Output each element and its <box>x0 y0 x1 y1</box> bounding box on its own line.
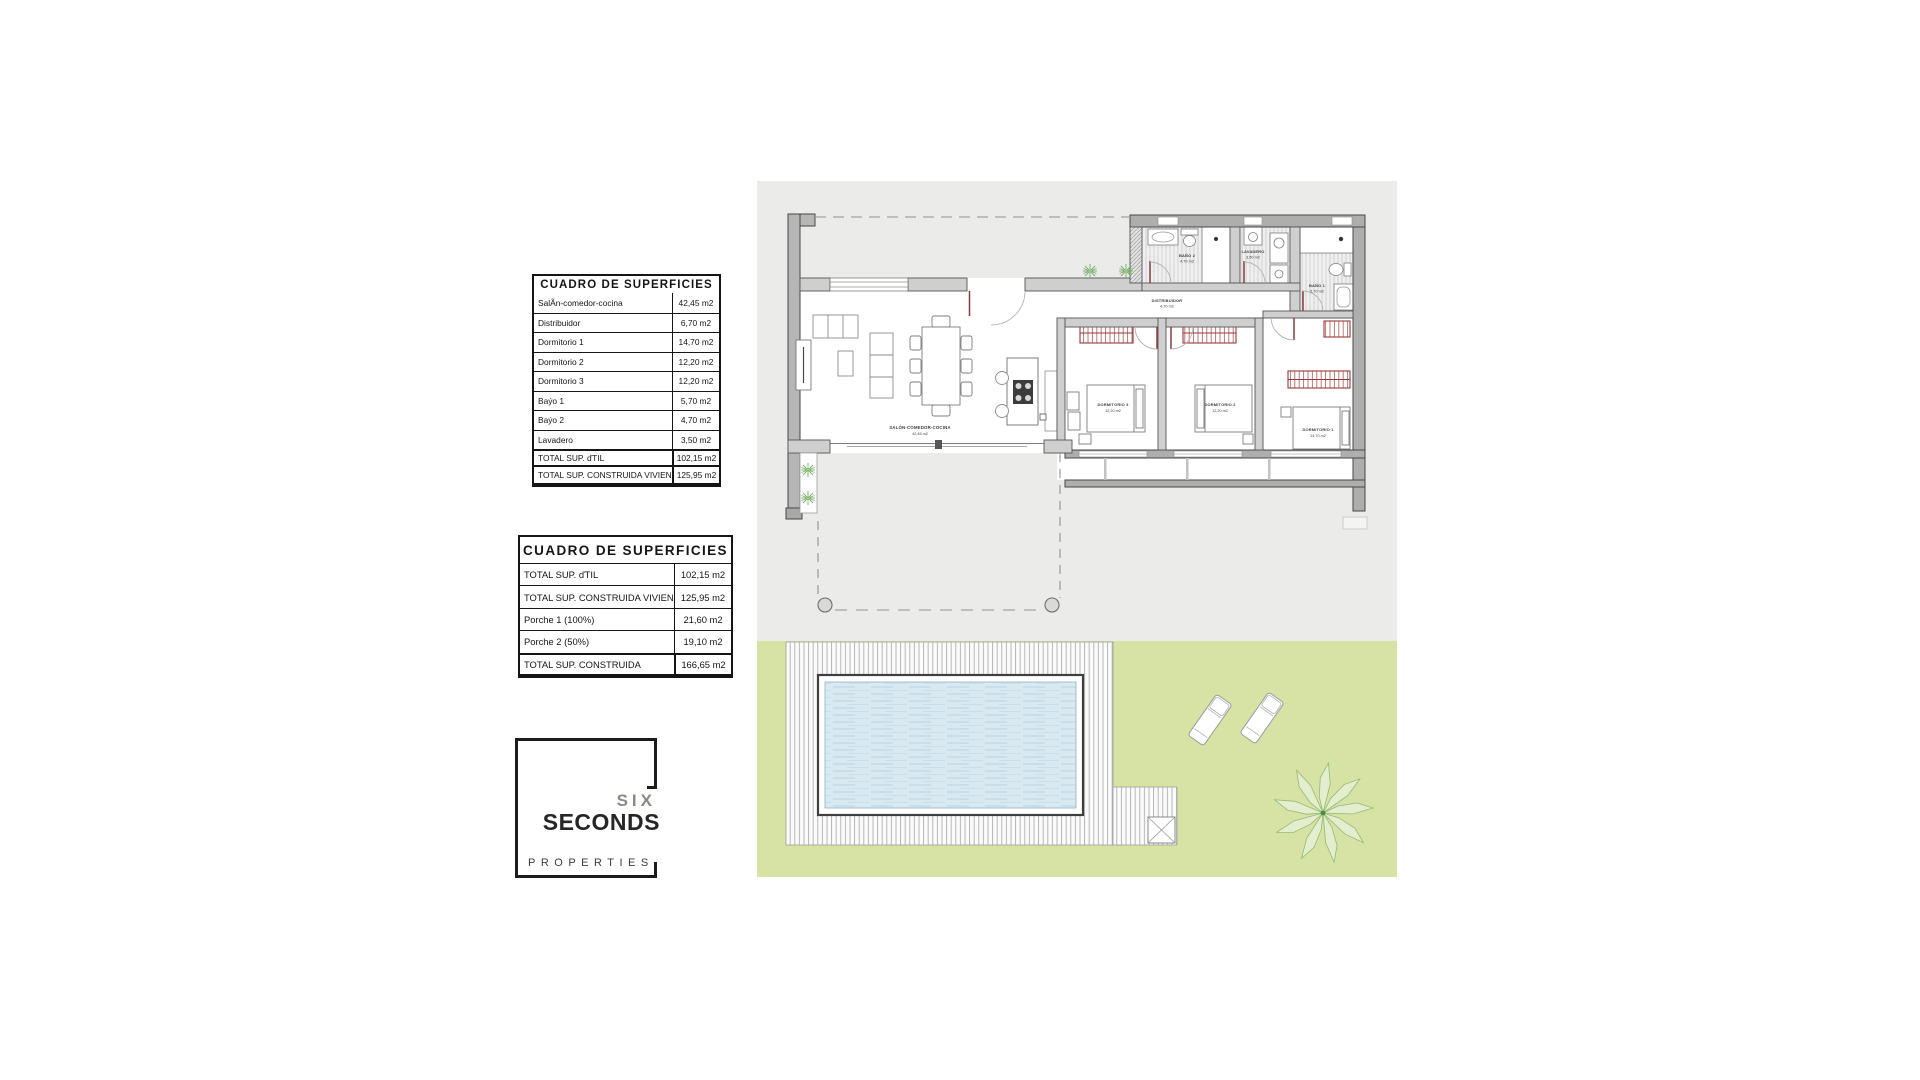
surface-table-title: CUADRO DE SUPERFICIES <box>534 276 719 293</box>
logo-border <box>647 786 657 789</box>
table-row: Distribuidor 6,70 m2 <box>534 313 719 333</box>
room-area-bedroom1: 14,70 m2 <box>1310 434 1326 438</box>
coffee-table <box>838 351 853 376</box>
room-label-bath2: BAÑO 2 <box>1179 253 1196 258</box>
room-area-living: 42,45 m2 <box>912 432 928 436</box>
room-label-bath1: BAÑO 1 <box>1309 283 1326 288</box>
table-row: Porche 1 (100%) 21,60 m2 <box>520 608 731 630</box>
logo-border <box>515 738 657 741</box>
planter <box>800 453 817 513</box>
room-label-bedroom3: DORMITORIO 3 <box>1097 402 1129 407</box>
plant-icon <box>1119 264 1133 278</box>
surface-table-rooms: CUADRO DE SUPERFICIES SalÃn-comedor-coci… <box>532 274 721 487</box>
surface-table-title: CUADRO DE SUPERFICIES <box>520 537 731 563</box>
room-area-hall: 4,70 m2 <box>1160 305 1174 309</box>
stove <box>1013 380 1033 404</box>
room-label-hall: DISTRIBUIDOR <box>1152 298 1183 303</box>
room-label-bedroom1: DORMITORIO 1 <box>1302 427 1334 432</box>
table-total-row: TOTAL SUP. ďTIL 102,15 m2 <box>534 449 719 467</box>
pergola-footing <box>1148 817 1175 843</box>
logo-word-six: SIX <box>617 791 656 811</box>
six-seconds-logo: SIX SECONDS PROPERTIES <box>515 738 657 878</box>
room-area-bedroom2: 12,20 m2 <box>1212 409 1228 413</box>
room-area-laundry: 3,50 m2 <box>1246 256 1260 260</box>
room-label-bedroom2: DORMITORIO 2 <box>1204 402 1236 407</box>
logo-word-seconds: SECONDS <box>543 809 660 836</box>
room-area-bath2: 4,70 m2 <box>1180 260 1194 264</box>
surface-table-totals: CUADRO DE SUPERFICIES TOTAL SUP. ďTIL 10… <box>518 535 733 678</box>
room-label-laundry: LAVADERO <box>1241 249 1264 254</box>
plant-icon <box>801 491 815 505</box>
room-area-bedroom3: 12,20 m2 <box>1105 409 1121 413</box>
logo-border <box>654 738 657 788</box>
table-row: Porche 2 (50%) 19,10 m2 <box>520 630 731 652</box>
room-label-living: SALÓN-COMEDOR-COCINA <box>889 425 951 430</box>
logo-border <box>515 738 518 878</box>
corner-footing <box>1343 517 1367 529</box>
floor-symbol <box>1040 414 1046 420</box>
table-row: Lavadero 3,50 m2 <box>534 430 719 450</box>
floor-plan-svg: SALÓN-COMEDOR-COCINA 42,45 m2 DISTRIBUID… <box>757 181 1397 877</box>
logo-word-properties: PROPERTIES <box>528 857 654 869</box>
table-row: TOTAL SUP. CONSTRUIDA VIVIENDA 125,95 m2 <box>520 585 731 607</box>
room-area-bath1: 5,70 m2 <box>1310 290 1324 294</box>
plant-icon <box>1083 264 1097 278</box>
table-total-row: TOTAL SUP. CONSTRUIDA VIVIENDA 125,95 m2 <box>534 467 719 485</box>
logo-border <box>654 862 657 878</box>
table-row: Dormitorio 1 14,70 m2 <box>534 332 719 352</box>
logo-border <box>515 875 657 878</box>
table-row: Baýo 2 4,70 m2 <box>534 410 719 430</box>
table-row: SalÃn-comedor-cocina 42,45 m2 <box>534 293 719 313</box>
floor-plan-panel: SALÓN-COMEDOR-COCINA 42,45 m2 DISTRIBUID… <box>757 181 1397 877</box>
table-row: TOTAL SUP. ďTIL 102,15 m2 <box>520 563 731 585</box>
kitchen-counter <box>1045 371 1057 431</box>
plant-icon <box>801 463 815 477</box>
table-row: Dormitorio 2 12,20 m2 <box>534 352 719 372</box>
table-row: Dormitorio 3 12,20 m2 <box>534 371 719 391</box>
swimming-pool <box>818 675 1083 815</box>
table-total-row: TOTAL SUP. CONSTRUIDA 166,65 m2 <box>520 653 731 676</box>
table-row: Baýo 1 5,70 m2 <box>534 391 719 411</box>
